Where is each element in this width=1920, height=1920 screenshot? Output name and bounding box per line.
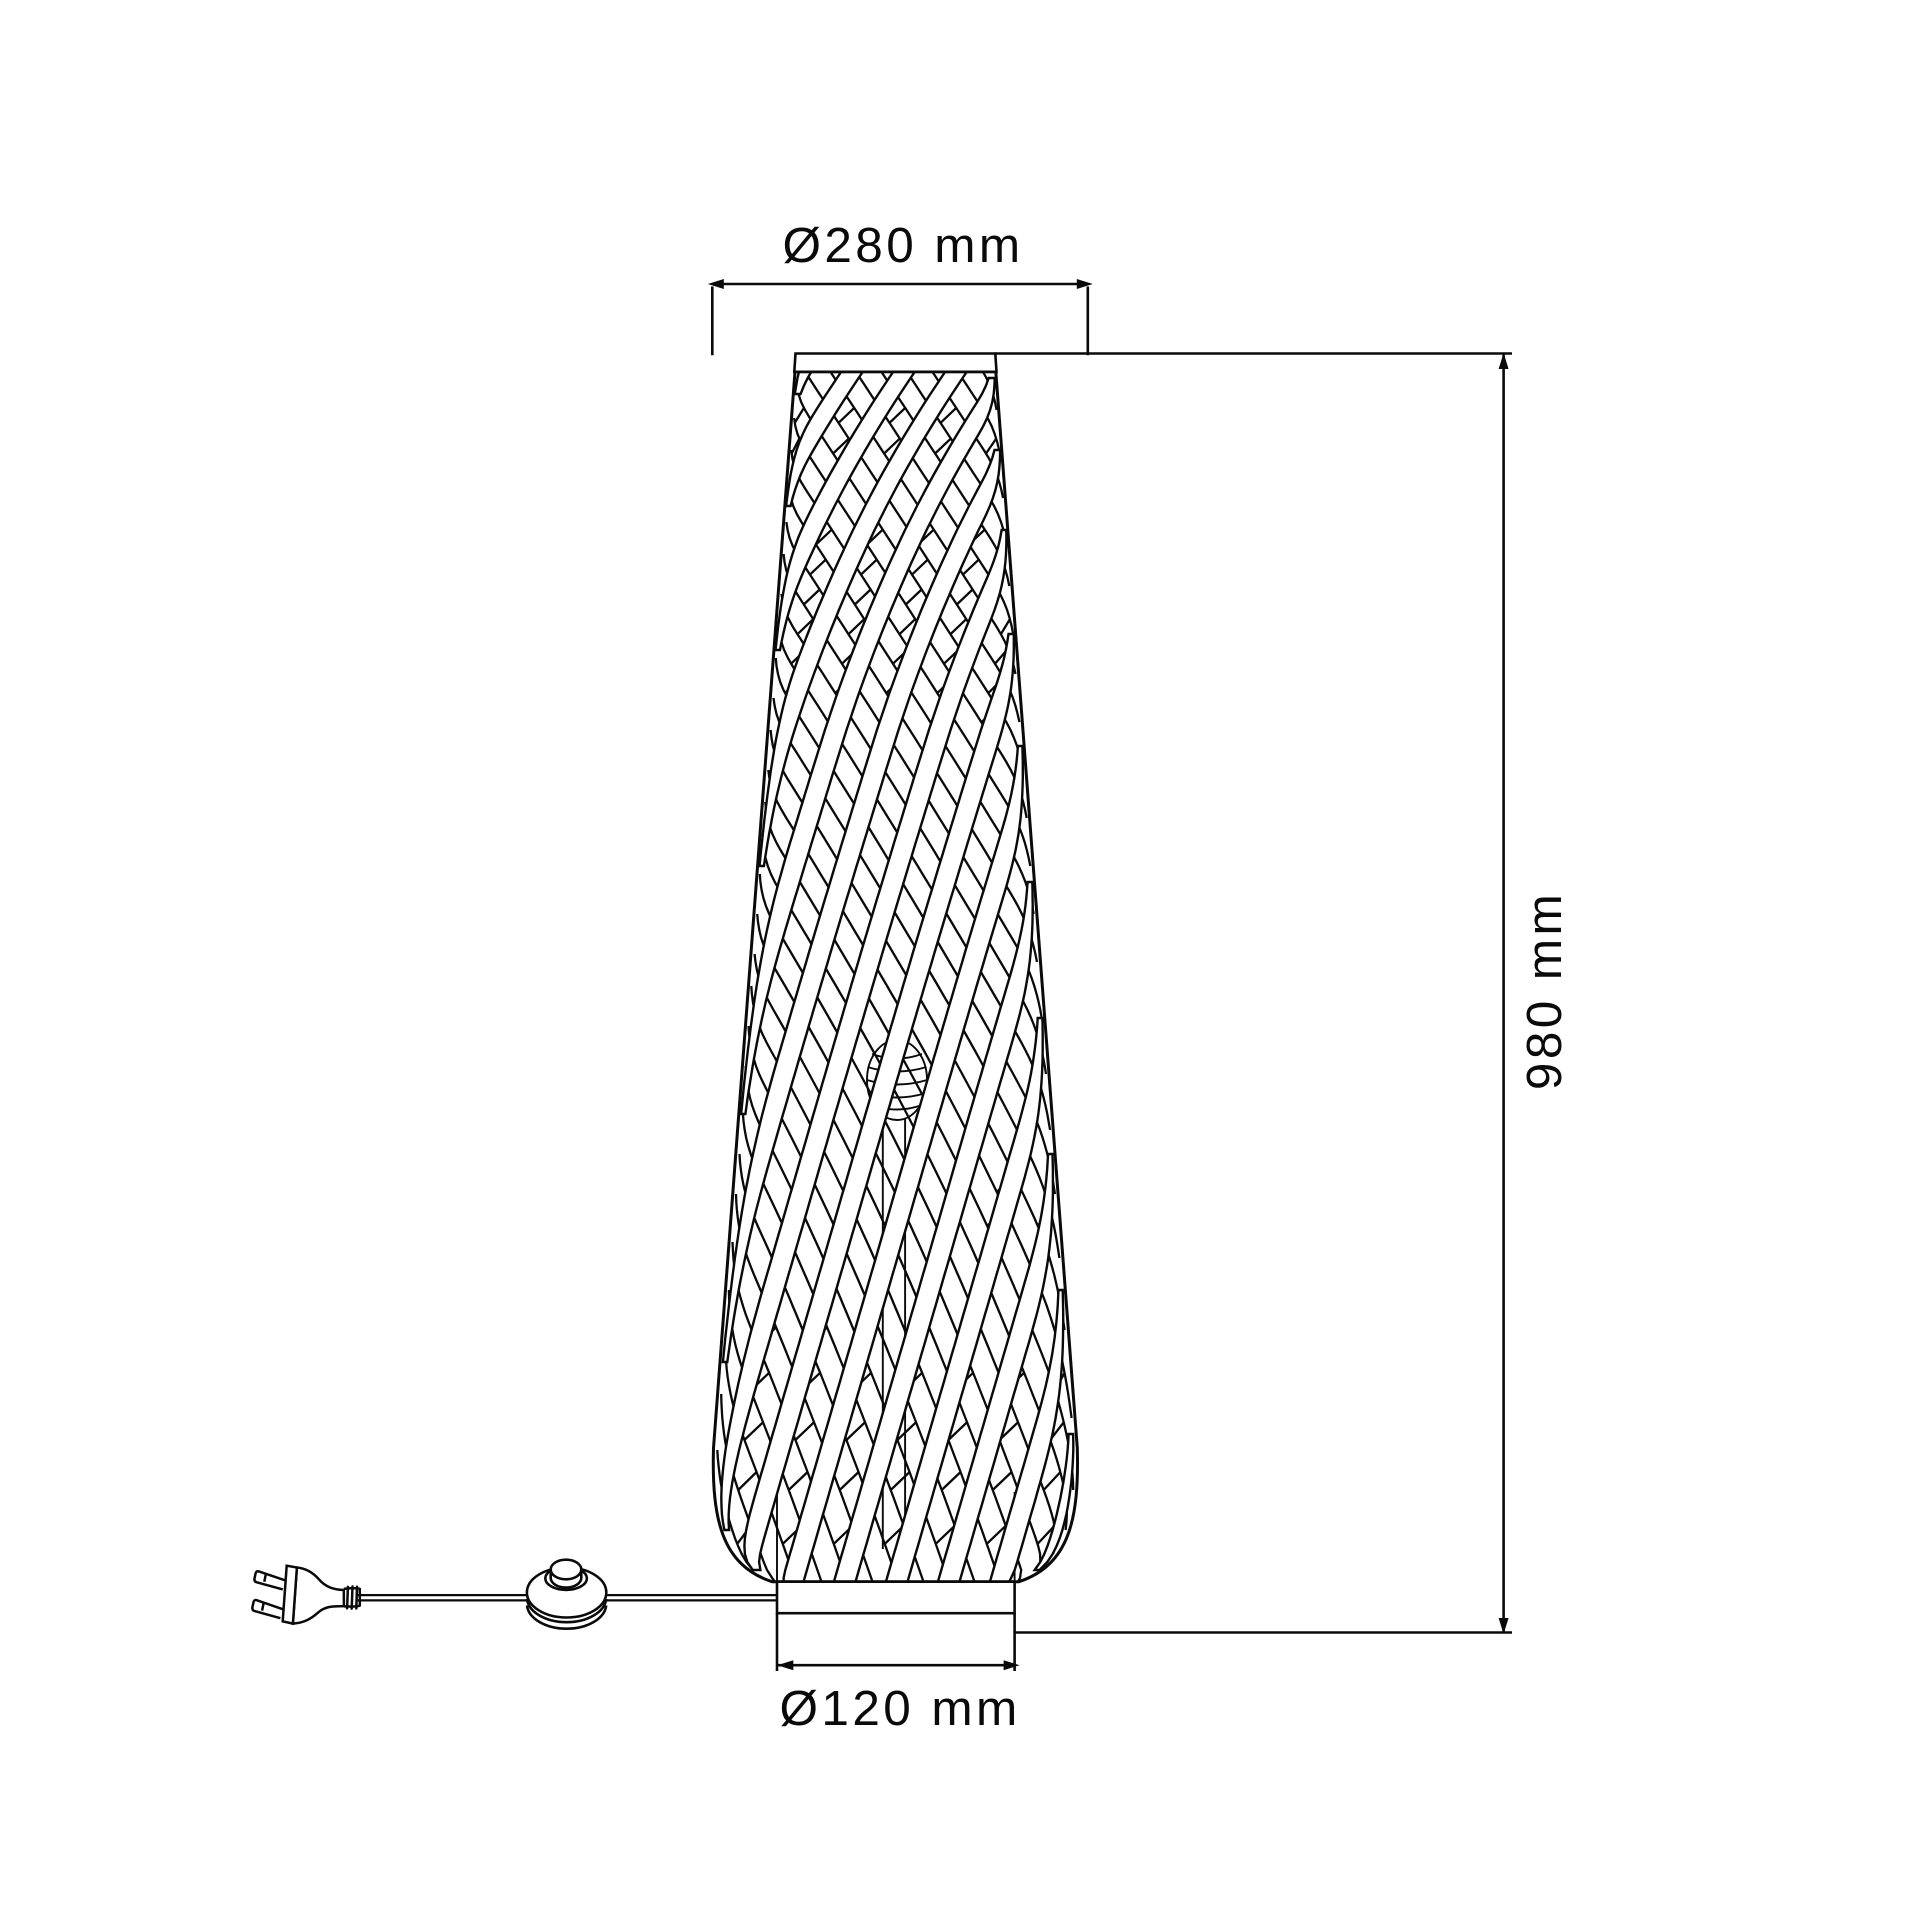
svg-text:Ø120 mm: Ø120 mm	[780, 1681, 1021, 1736]
svg-text:980 mm: 980 mm	[1517, 891, 1572, 1090]
svg-text:Ø280 mm: Ø280 mm	[782, 218, 1023, 273]
